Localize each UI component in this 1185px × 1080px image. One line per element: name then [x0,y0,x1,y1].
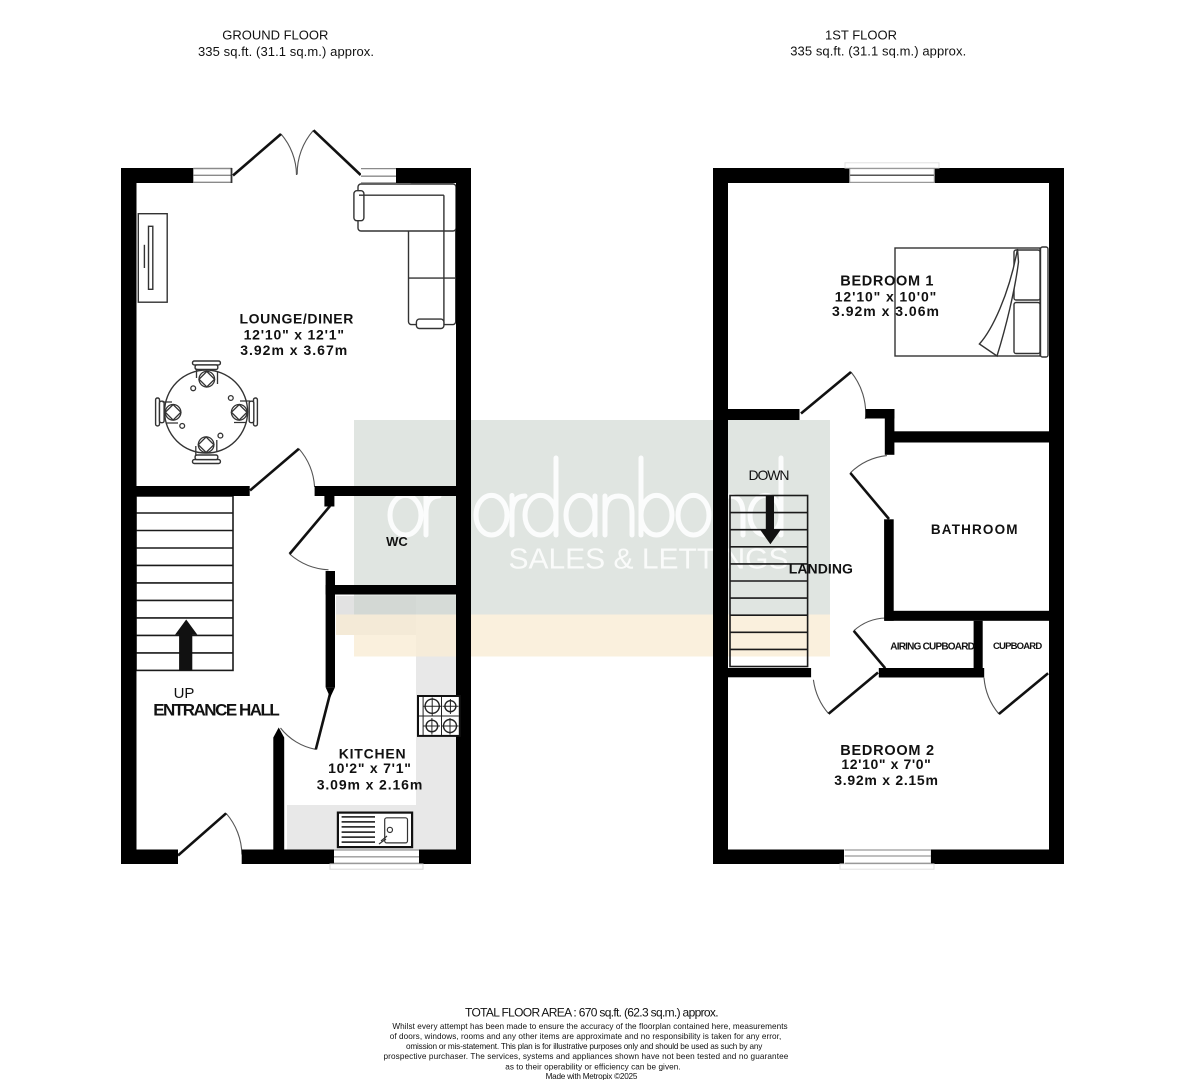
svg-text:1ST FLOOR: 1ST FLOOR [825,27,897,42]
svg-text:BATHROOM: BATHROOM [931,522,1018,537]
svg-text:SALES & LETTINGS: SALES & LETTINGS [509,544,789,576]
svg-text:LANDING: LANDING [789,561,853,577]
svg-text:Whilst every attempt has been: Whilst every attempt has been made to en… [392,1022,787,1031]
svg-text:as to their operability or eff: as to their operability or efficiency ca… [505,1063,680,1072]
svg-text:3.92m x 3.06m: 3.92m x 3.06m [832,303,939,319]
svg-text:UP: UP [174,685,195,702]
svg-text:CUPBOARD: CUPBOARD [993,641,1042,652]
svg-text:DOWN: DOWN [749,467,790,483]
svg-text:Made with Metropix ©2025: Made with Metropix ©2025 [546,1072,638,1080]
svg-text:335 sq.ft. (31.1 sq.m.) approx: 335 sq.ft. (31.1 sq.m.) approx. [790,43,966,58]
svg-text:BEDROOM 1: BEDROOM 1 [840,273,933,289]
svg-text:12'10" x 7'0": 12'10" x 7'0" [841,756,930,772]
svg-text:335 sq.ft. (31.1 sq.m.) approx: 335 sq.ft. (31.1 sq.m.) approx. [198,44,374,59]
svg-text:WC: WC [386,534,408,549]
svg-text:of doors, windows, rooms and a: of doors, windows, rooms and any other i… [390,1032,782,1041]
svg-text:AIRING CUPBOARD: AIRING CUPBOARD [890,642,975,653]
svg-text:10'2" x 7'1": 10'2" x 7'1" [328,760,411,776]
svg-text:3.92m x 3.67m: 3.92m x 3.67m [240,342,347,358]
svg-text:12'10" x 10'0": 12'10" x 10'0" [835,288,937,304]
svg-text:3.09m x 2.16m: 3.09m x 2.16m [317,777,423,793]
svg-text:omission or mis-statement. Thi: omission or mis-statement. This plan is … [406,1042,763,1051]
svg-text:12'10" x 12'1": 12'10" x 12'1" [244,327,344,343]
svg-text:LOUNGE/DINER: LOUNGE/DINER [239,311,353,327]
svg-text:ENTRANCE HALL: ENTRANCE HALL [153,701,280,720]
svg-text:TOTAL FLOOR AREA : 670 sq.ft.: TOTAL FLOOR AREA : 670 sq.ft. (62.3 sq.m… [465,1006,719,1020]
svg-text:3.92m x 2.15m: 3.92m x 2.15m [834,772,938,788]
svg-text:GROUND FLOOR: GROUND FLOOR [222,27,328,42]
svg-text:prospective purchaser. The ser: prospective purchaser. The services, sys… [384,1052,789,1061]
